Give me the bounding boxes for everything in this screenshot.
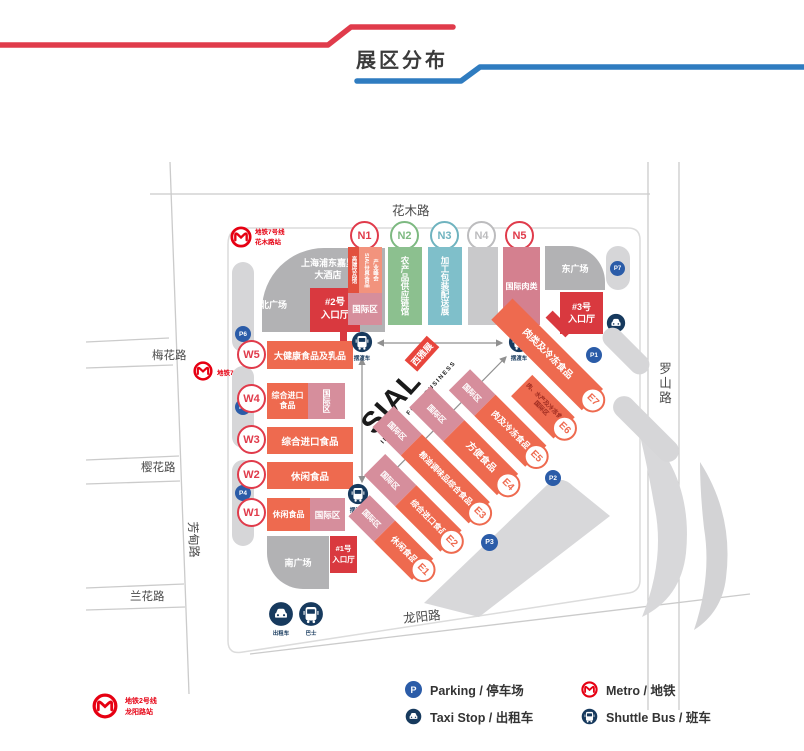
metro-icon [92,693,118,719]
hall-badge-n2: N2 [390,221,419,250]
taxi-icon [405,708,422,725]
hall-n1-intl-zone: 国际区 [348,293,382,325]
hall-badge-w3: W3 [237,425,266,454]
hall-badge-w5: W5 [237,340,266,369]
parking-badge-p1: P1 [586,347,602,363]
street-west-line [170,162,189,694]
hall-n1: 高端饮品馆 SIAL世界食品 产业峰会 国际区 [348,247,382,325]
taxi-icon [268,601,294,627]
hall-badge-n5: N5 [505,221,534,250]
metro-line7-huamu-label: 地铁7号线 花木路站 [255,228,285,248]
parking-badge-p7: P7 [610,261,625,276]
street-label-east: 罗山路 [655,362,674,406]
shuttle-bus-icon [581,708,598,725]
hall-n1-strip: 高端饮品馆 [348,247,359,293]
hall-n1-col1-label: SIAL世界食品 [362,253,370,288]
street-yinghua-line-2 [86,481,180,484]
parking-badge-p2: P2 [545,470,561,486]
bus-icon [298,601,324,627]
street-label-south: 龙阳路 [402,604,441,627]
metro-icon [193,361,213,381]
legend-item-taxi: Taxi Stop / 出租车 [405,707,555,726]
hall-w1-label: 休闲食品 [267,498,310,531]
hall-badge-n3: N3 [430,221,459,250]
legend-shuttle-label: Shuttle Bus / 班车 [606,707,711,726]
parking-badge-p3: P3 [481,534,498,551]
hall-badge-n1: N1 [350,221,379,250]
metro-line2-longyang-label: 地铁2号线 龙阳路站 [125,697,157,718]
metro-icon [581,681,598,698]
curved-road-shape-2 [694,462,728,630]
parking-icon: P [405,681,422,698]
metro-icon [230,226,252,248]
street-label-yinghua: 樱花路 [141,459,176,475]
legend-item-shuttle: Shuttle Bus / 班车 [581,707,711,726]
street-label-lanhua: 兰花路 [130,588,165,604]
hall-badge-w4: W4 [237,384,266,413]
taxi-label: 出租车 [268,629,294,637]
bus-label: 巴士 [298,629,324,637]
legend-item-parking: P Parking / 停车场 [405,680,555,699]
north-plaza-label: 北广场 [260,298,287,311]
entrance-hall-1: #1号 入口厅 [330,536,357,573]
exhibition-map-page: 展区分布 [0,0,804,751]
street-meihua-line-2 [86,365,173,368]
legend-parking-label: Parking / 停车场 [430,680,524,699]
street-label-meihua: 梅花路 [152,347,187,363]
street-meihua-line-1 [86,338,169,342]
street-label-north: 花木路 [392,200,430,219]
legend: P Parking / 停车场 Metro / 地铁 Taxi Stop / 出… [405,680,735,726]
hall-n1-strip-label: 高端饮品馆 [350,256,358,284]
hall-badge-n4: N4 [467,221,496,250]
hall-w5: 大健康食品及乳品 [267,341,353,369]
street-lanhua-line-2 [86,607,185,610]
hall-badge-w1: W1 [237,498,266,527]
legend-taxi-label: Taxi Stop / 出租车 [430,707,533,726]
legend-metro-label: Metro / 地铁 [606,680,675,699]
hall-badge-w2: W2 [237,460,266,489]
hall-n1-main: SIAL世界食品 产业峰会 [359,247,382,293]
hall-n1-col2-label: 产业峰会 [371,259,379,281]
street-label-west: 芳甸路 [184,521,203,562]
legend-item-metro: Metro / 地铁 [581,680,675,699]
